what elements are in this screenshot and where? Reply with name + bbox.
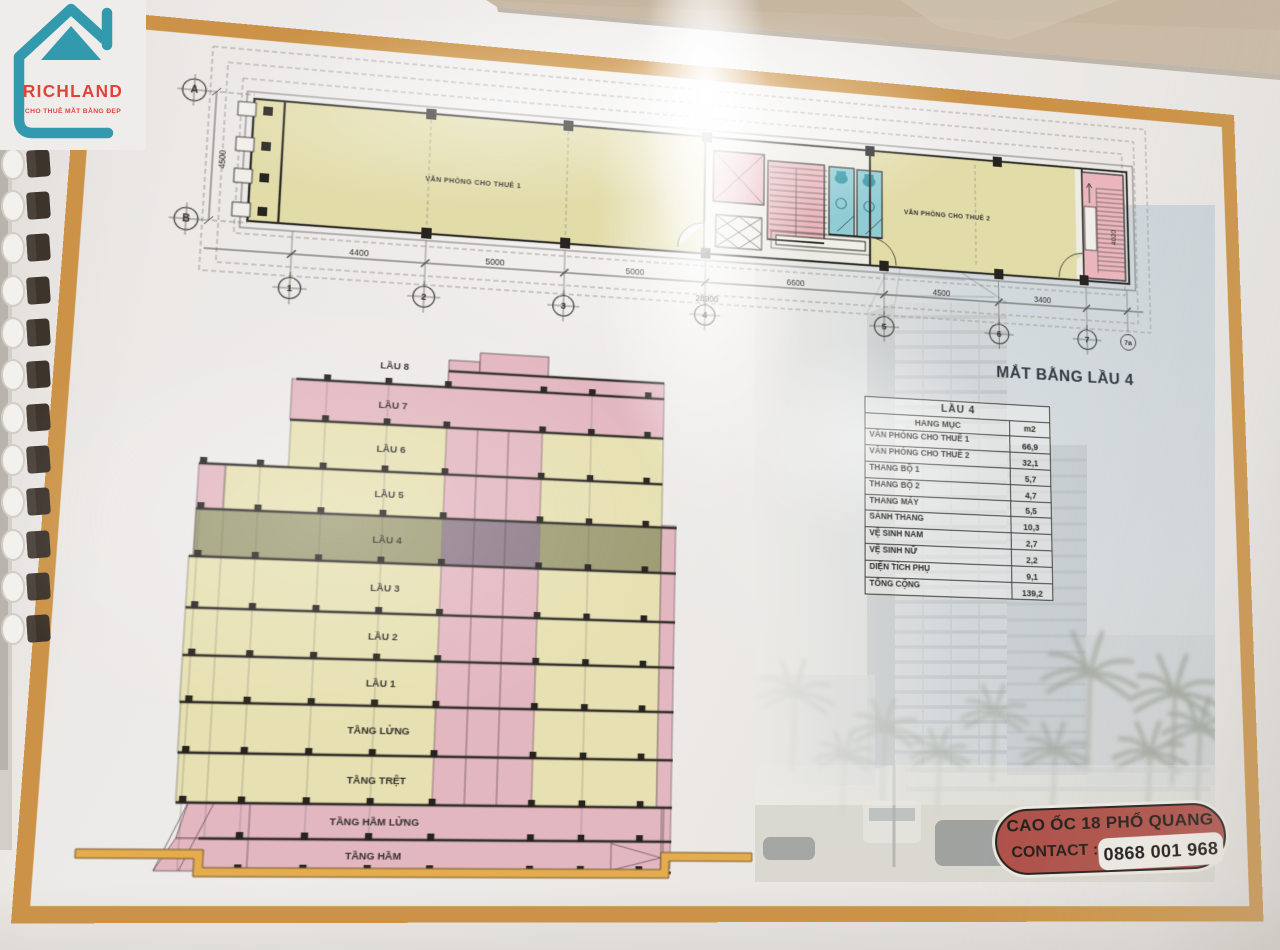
svg-text:28900: 28900 xyxy=(695,293,718,304)
svg-text:LẦU 5: LẦU 5 xyxy=(374,489,404,501)
svg-text:7a: 7a xyxy=(1124,339,1132,347)
svg-text:5: 5 xyxy=(882,322,887,332)
svg-text:2: 2 xyxy=(421,292,427,303)
svg-text:LẦU 3: LẦU 3 xyxy=(370,583,400,595)
svg-text:TẦNG HẦM: TẦNG HẦM xyxy=(345,851,402,863)
svg-text:6: 6 xyxy=(997,330,1002,340)
svg-text:LẦU 8: LẦU 8 xyxy=(380,361,410,373)
svg-text:6600: 6600 xyxy=(787,278,805,288)
svg-text:LẦU 7: LẦU 7 xyxy=(378,400,408,412)
svg-text:4: 4 xyxy=(702,311,708,322)
svg-text:3: 3 xyxy=(561,302,567,313)
svg-text:LẦU 2: LẦU 2 xyxy=(368,631,399,643)
svg-text:1: 1 xyxy=(286,284,293,295)
svg-text:TẦNG TRỆT: TẦNG TRỆT xyxy=(346,774,406,787)
svg-text:3400: 3400 xyxy=(1034,295,1051,305)
svg-text:LẦU 4: LẦU 4 xyxy=(372,535,402,547)
svg-text:4400: 4400 xyxy=(349,247,369,258)
svg-text:4020: 4020 xyxy=(1110,229,1118,245)
svg-text:7: 7 xyxy=(1085,336,1090,346)
svg-text:TẦNG LỬNG: TẦNG LỬNG xyxy=(347,724,410,738)
svg-text:RICHLAND: RICHLAND xyxy=(23,81,123,101)
svg-text:B: B xyxy=(182,214,191,225)
svg-text:4500: 4500 xyxy=(217,149,228,169)
svg-text:LẦU 6: LẦU 6 xyxy=(376,444,406,456)
svg-text:TẦNG HẦM LỬNG: TẦNG HẦM LỬNG xyxy=(329,815,419,828)
svg-text:LẦU 1: LẦU 1 xyxy=(366,678,397,690)
svg-text:5000: 5000 xyxy=(626,267,645,278)
svg-text:5000: 5000 xyxy=(485,257,505,268)
svg-text:4500: 4500 xyxy=(933,288,951,298)
svg-text:CHO THUÊ MẰT BẰNG ĐẸP: CHO THUÊ MẰT BẰNG ĐẸP xyxy=(25,106,121,115)
svg-text:A: A xyxy=(190,85,199,96)
